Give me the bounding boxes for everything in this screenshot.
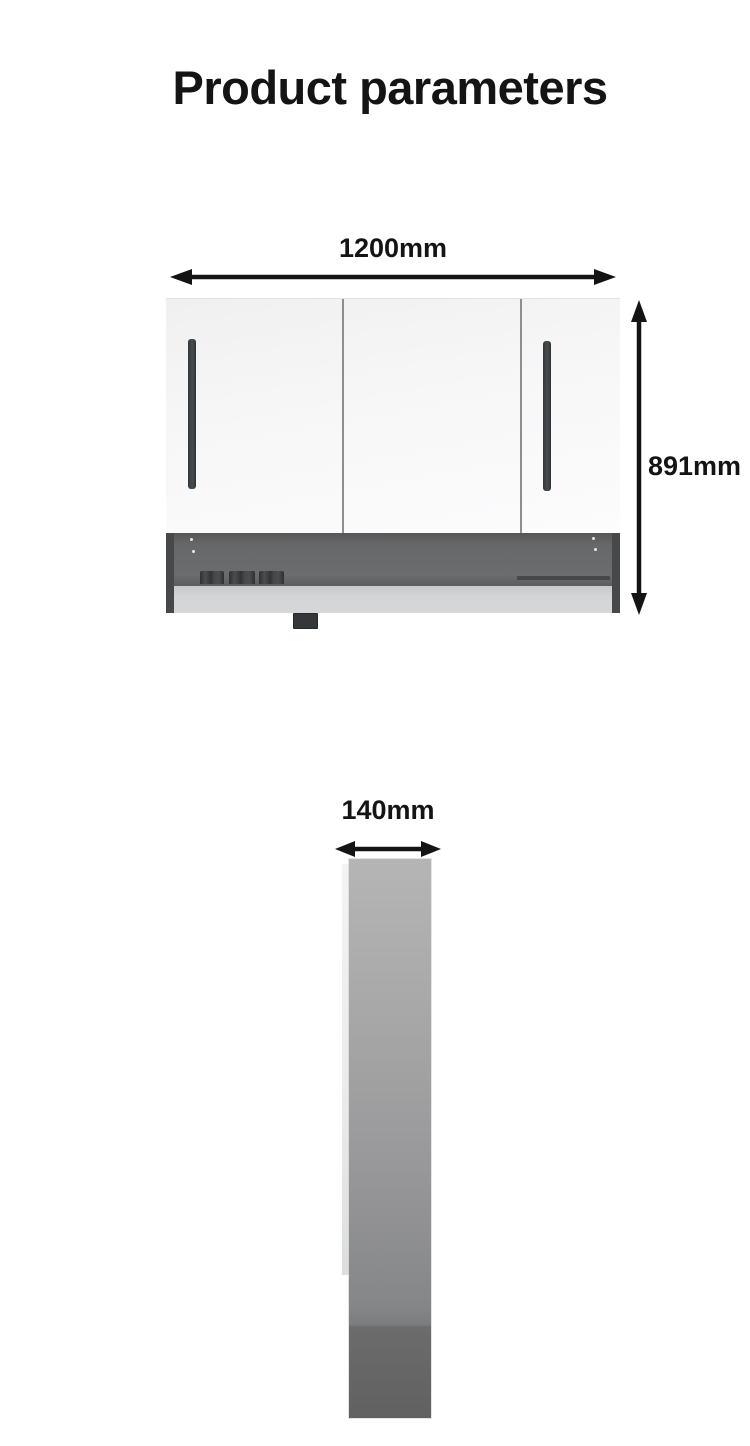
side-view-body-panel [349, 859, 431, 1418]
cup-group [259, 571, 284, 584]
depth-dimension-label: 140mm [333, 795, 443, 826]
screw-dot [594, 548, 597, 551]
left-door-handle [188, 339, 196, 489]
screw-dot [192, 550, 195, 553]
cabinet-bottom-section [166, 533, 620, 613]
open-shelf-recess [174, 533, 612, 586]
height-dimension-label: 891mm [648, 451, 741, 482]
screw-dot [190, 538, 193, 541]
cup-group [200, 571, 224, 584]
depth-dimension-arrow [333, 838, 443, 860]
mirror-doors [166, 298, 620, 533]
cup-group [229, 571, 255, 584]
shelf-front-edge [174, 586, 612, 613]
width-dimension-label: 1200mm [166, 233, 620, 264]
switch-box [293, 613, 318, 629]
page-title: Product parameters [30, 60, 750, 115]
product-parameters-page: Product parameters 1200mm [0, 0, 750, 1446]
cabinet-front-view [166, 298, 620, 613]
recess-shadow [517, 576, 610, 580]
door-divider-left [342, 299, 344, 534]
width-dimension-arrow [166, 266, 620, 288]
height-dimension-arrow [628, 296, 650, 619]
right-door-handle [543, 341, 551, 491]
screw-dot [592, 537, 595, 540]
door-divider-right [520, 299, 522, 534]
